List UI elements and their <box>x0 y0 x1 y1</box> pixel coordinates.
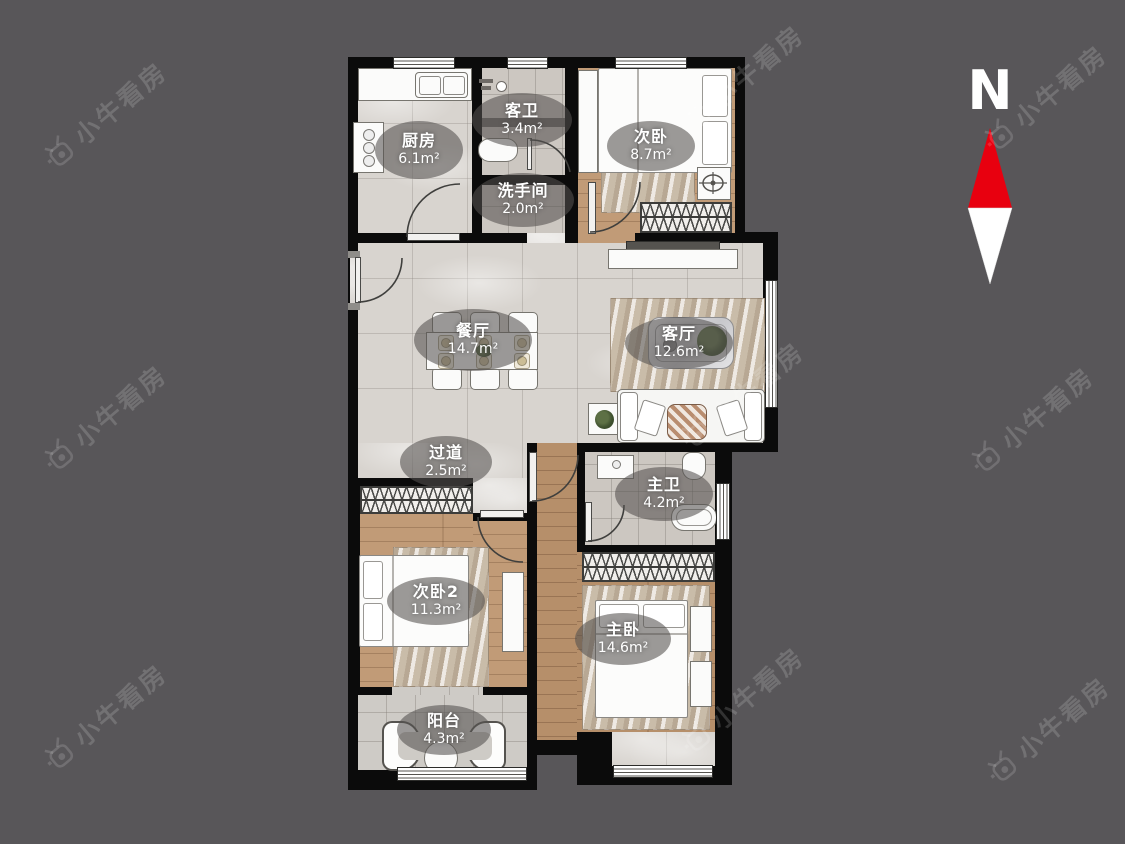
watermark: 小牛看房 <box>36 356 175 481</box>
watermark-text: 小牛看房 <box>992 358 1101 458</box>
room-name: 主卫 <box>647 475 681 495</box>
room-name: 次卧2 <box>413 582 459 602</box>
room-name: 客厅 <box>662 324 696 344</box>
room-label-master-bedroom: 主卧 14.6m² <box>575 613 671 665</box>
bull-logo-icon <box>36 129 84 177</box>
room-name: 客卫 <box>505 101 539 121</box>
room-name: 餐厅 <box>456 321 490 341</box>
room-label-dining: 餐厅 14.7m² <box>414 309 532 371</box>
room-label-guest-bath: 客卫 3.4m² <box>472 93 572 147</box>
room-area: 2.0m² <box>502 201 544 219</box>
room-name: 阳台 <box>427 711 461 731</box>
room-label-kitchen: 厨房 6.1m² <box>375 121 463 179</box>
room-area: 4.2m² <box>643 495 685 513</box>
room-label-bedroom-second2: 次卧2 11.3m² <box>387 577 485 625</box>
north-label: N <box>958 60 1022 122</box>
room-area: 6.1m² <box>398 151 440 169</box>
room-area: 4.3m² <box>423 731 465 749</box>
room-area: 12.6m² <box>654 344 704 362</box>
room-name: 厨房 <box>402 131 436 151</box>
watermark: 小牛看房 <box>963 358 1102 483</box>
room-label-living: 客厅 12.6m² <box>625 317 733 369</box>
watermark-text: 小牛看房 <box>1008 668 1117 768</box>
room-name: 次卧 <box>634 127 668 147</box>
compass-arrow-icon <box>963 126 1017 286</box>
room-label-master-bath: 主卫 4.2m² <box>615 467 713 521</box>
room-area: 3.4m² <box>501 121 543 139</box>
room-name: 主卧 <box>606 620 640 640</box>
room-area: 8.7m² <box>630 147 672 165</box>
room-area: 14.7m² <box>448 341 498 359</box>
room-name: 洗手间 <box>497 181 548 201</box>
page: { "compass": { "label": "N", "arrow_red"… <box>0 0 1125 844</box>
watermark: 小牛看房 <box>979 668 1118 793</box>
room-name: 过道 <box>429 443 463 463</box>
watermark-text: 小牛看房 <box>65 655 174 755</box>
room-label-hallway: 过道 2.5m² <box>400 436 492 488</box>
room-area: 11.3m² <box>411 602 461 620</box>
watermark: 小牛看房 <box>36 655 175 780</box>
watermark-text: 小牛看房 <box>65 356 174 456</box>
room-label-balcony: 阳台 4.3m² <box>397 705 491 755</box>
floorplan: 厨房 6.1m² 客卫 3.4m² 次卧 8.7m² 洗手间 2.0m² 餐厅 … <box>345 55 785 795</box>
room-area: 14.6m² <box>598 640 648 658</box>
watermark-text: 小牛看房 <box>65 53 174 153</box>
watermark: 小牛看房 <box>36 53 175 178</box>
room-label-bedroom-second: 次卧 8.7m² <box>607 121 695 171</box>
room-label-washroom: 洗手间 2.0m² <box>472 173 574 227</box>
room-area: 2.5m² <box>425 463 467 481</box>
